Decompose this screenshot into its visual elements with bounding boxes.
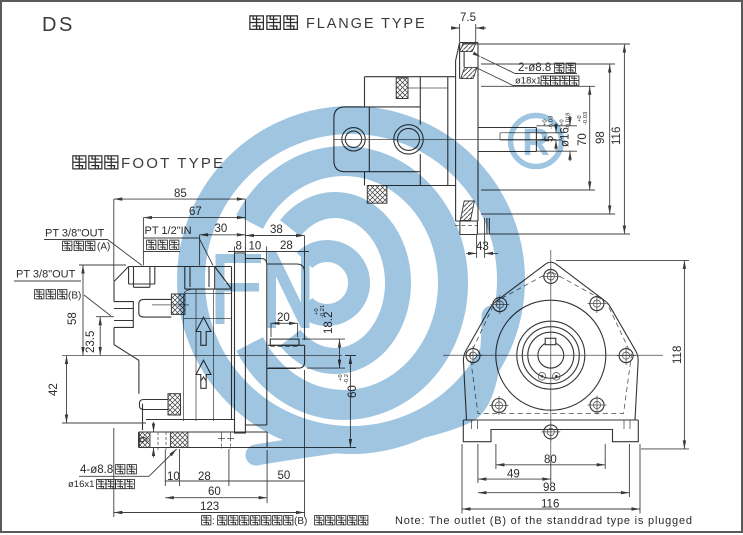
svg-text:-0.03: -0.03 xyxy=(583,112,589,125)
svg-text:Note: The outlet (B) of th: Note: The outlet (B) of the standdrad ty… xyxy=(395,515,693,527)
svg-text:98: 98 xyxy=(543,482,556,494)
svg-text:7.5: 7.5 xyxy=(460,12,476,24)
svg-text:50: 50 xyxy=(278,470,291,482)
svg-text:ø18x1: ø18x1 xyxy=(515,76,541,87)
svg-text:(A): (A) xyxy=(97,242,110,253)
svg-text:PT 3/8"OUT: PT 3/8"OUT xyxy=(45,228,105,240)
svg-text:8: 8 xyxy=(236,241,242,253)
svg-text:116: 116 xyxy=(611,127,623,145)
svg-text:58: 58 xyxy=(67,312,79,325)
svg-text:30: 30 xyxy=(215,223,228,235)
svg-text:60: 60 xyxy=(208,486,221,498)
svg-text:ø16x1: ø16x1 xyxy=(68,479,94,490)
svg-text:(B): (B) xyxy=(68,291,81,302)
svg-text:23.5: 23.5 xyxy=(85,331,97,353)
svg-text:(B): (B) xyxy=(294,516,307,527)
svg-text:118: 118 xyxy=(672,346,684,364)
svg-text:123: 123 xyxy=(200,501,219,513)
svg-text:PT 3/8"OUT: PT 3/8"OUT xyxy=(16,269,76,281)
svg-text:43: 43 xyxy=(476,241,489,253)
svg-text:70: 70 xyxy=(577,133,589,146)
svg-text:42: 42 xyxy=(48,383,60,396)
svg-text:R: R xyxy=(522,122,549,164)
svg-text:4-ø8.8: 4-ø8.8 xyxy=(80,464,113,476)
svg-text:98: 98 xyxy=(595,131,607,144)
svg-text:FLANGE TYPE: FLANGE TYPE xyxy=(306,16,427,32)
svg-text::: : xyxy=(212,516,215,527)
svg-text:-0.2: -0.2 xyxy=(344,374,350,384)
svg-text:85: 85 xyxy=(174,188,187,200)
svg-text:9: 9 xyxy=(139,437,151,443)
svg-text:38: 38 xyxy=(270,224,283,236)
svg-text:28: 28 xyxy=(280,240,293,252)
svg-text:FOOT TYPE: FOOT TYPE xyxy=(121,155,225,172)
svg-text:DS: DS xyxy=(42,14,75,36)
svg-text:10: 10 xyxy=(249,241,262,253)
